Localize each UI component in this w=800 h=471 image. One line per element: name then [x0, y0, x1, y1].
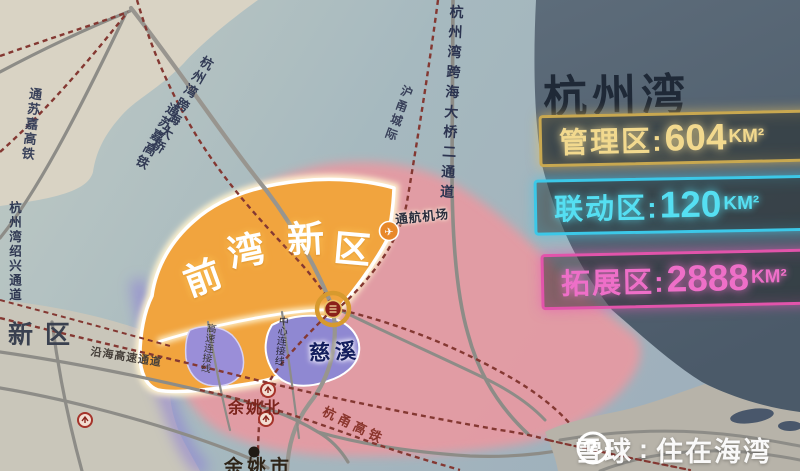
legend-label: 拓展区:	[561, 259, 667, 303]
yuyao-north-station-icon	[261, 383, 275, 397]
legend-unit: KM²	[751, 266, 787, 289]
legend-unit: KM²	[723, 193, 759, 216]
legend-value: 604	[664, 116, 727, 159]
legend-value: 2888	[666, 257, 749, 301]
xueqiu-logo-icon	[575, 430, 611, 466]
svg-text:✈: ✈	[384, 226, 393, 239]
legend-label: 联动区:	[554, 185, 659, 229]
west-station-icon	[78, 413, 92, 427]
legend-item-linkage-zone: 联动区: 120 KM²	[534, 174, 800, 235]
legend-unit: KM²	[728, 126, 764, 149]
watermark-separator: :	[639, 434, 650, 465]
legend-value: 120	[659, 183, 721, 226]
hangzhou-bay-planning-map-photo: ✈ 杭州湾跨海大桥 通苏嘉高铁 通苏嘉高铁 杭州湾跨海大桥二通道 沪甬城际 杭州…	[0, 0, 800, 471]
legend-label: 管理区:	[559, 118, 665, 162]
legend-item-expansion-zone: 拓展区: 2888 KM²	[540, 248, 800, 310]
yuyao-north-station-icon-2	[259, 412, 273, 426]
watermark-name: 住在海湾	[656, 430, 772, 469]
watermark: 雪球 : 住在海湾	[575, 430, 772, 469]
airport-icon: ✈	[380, 222, 399, 241]
legend-item-management-zone: 管理区: 604 KM²	[538, 109, 800, 167]
yuyao-city-dot	[249, 447, 260, 458]
